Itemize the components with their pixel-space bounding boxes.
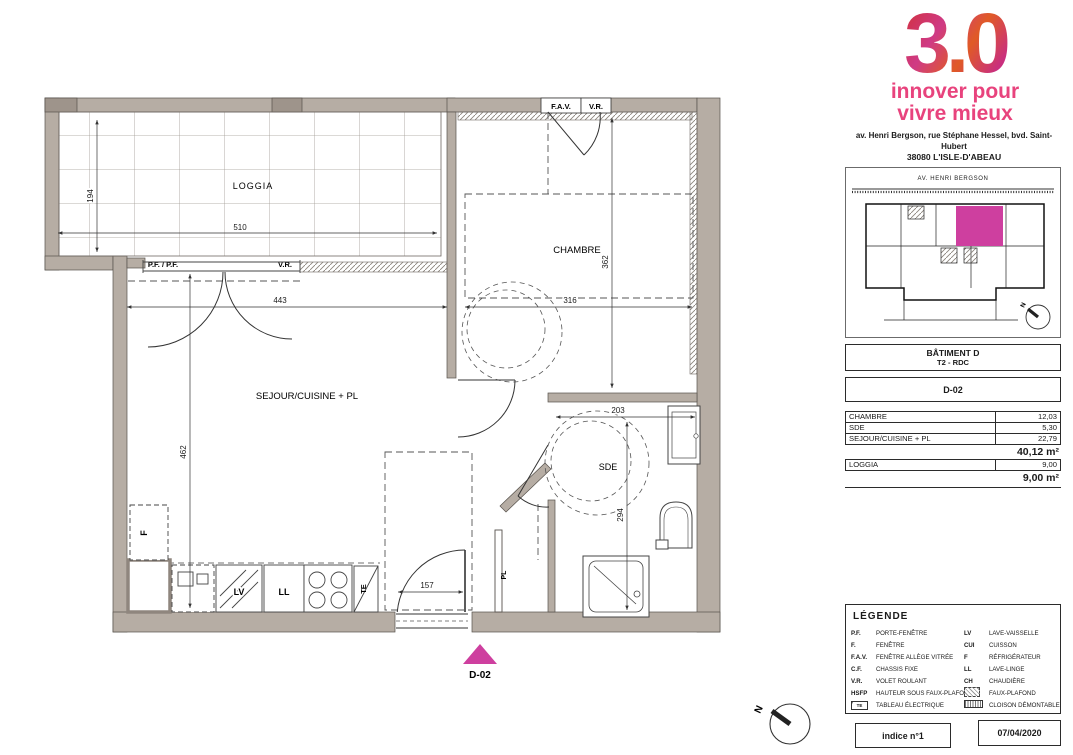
fav-label: F.A.V. <box>551 102 571 111</box>
address-line-2: 38080 L'ISLE-D'ABEAU <box>843 152 1065 163</box>
svg-text:462: 462 <box>179 445 188 459</box>
legend-item: CUI CUISSON <box>964 639 1060 651</box>
legend-item: LL LAVE-LINGE <box>964 663 1060 675</box>
legend-item: F RÉFRIGÉRATEUR <box>964 651 1060 663</box>
legend-title: LÉGENDE <box>853 611 1055 622</box>
unit-marker: D-02 <box>463 644 497 681</box>
electrical-panel-label: TE <box>359 584 368 594</box>
legend-right-column: LV LAVE-VAISSELLE CUI CUISSON F RÉFRIGÉR… <box>964 627 1060 711</box>
legend-item: LV LAVE-VAISSELLE <box>964 627 1060 639</box>
compass-icon: N <box>753 704 810 744</box>
legend-item: V.R. VOLET ROULANT <box>851 675 959 687</box>
legend-item: CLOISON DÉMONTABLE <box>964 699 1060 711</box>
compass-north-label: N <box>753 704 766 715</box>
total-main-area: 40,12 m² <box>845 445 1061 459</box>
legend-item: HSFP HAUTEUR SOUS FAUX-PLAFOND <box>851 687 959 699</box>
washer-label: LL <box>279 587 290 597</box>
areas-table: CHAMBRE 12,03 SDE 5,30 SEJOUR/CUISINE + … <box>845 411 1061 488</box>
total-loggia-area: 9,00 m² <box>845 471 1061 485</box>
dishwasher-label: LV <box>234 587 245 597</box>
room-label-sde: SDE <box>599 462 618 472</box>
legend-left-column: P.F. PORTE-FENÊTRE F. FENÊTRE F.A.V. FEN… <box>851 627 959 711</box>
table-row: SDE 5,30 <box>846 423 1061 434</box>
svg-text:157: 157 <box>420 581 434 590</box>
room-label-sejour: SEJOUR/CUISINE + PL <box>256 391 358 402</box>
area-label: SEJOUR/CUISINE + PL <box>846 434 996 445</box>
batiment-box: BÂTIMENT D T2 - RDC <box>845 344 1061 371</box>
legend-item: F.A.V. FENÊTRE ALLÈGE VITRÉE <box>851 651 959 663</box>
closet-label: PL <box>501 570 508 580</box>
floor-plan: F.A.V. V.R. P.F. / P.F. V.R. <box>0 0 840 755</box>
date-box: 07/04/2020 <box>978 720 1061 746</box>
logo-30-glyph: 3.0 <box>904 2 1008 90</box>
area-label: LOGGIA <box>846 460 996 471</box>
divider <box>845 487 1061 488</box>
legend-box: LÉGENDE P.F. PORTE-FENÊTRE F. FENÊTRE F.… <box>845 604 1061 714</box>
svg-text:294: 294 <box>616 508 625 522</box>
site-plan-box: AV. HENRI BERGSON <box>845 167 1061 338</box>
window-label-boxes: F.A.V. V.R. <box>541 98 611 113</box>
svg-text:362: 362 <box>601 255 610 269</box>
area-label: SDE <box>846 423 996 434</box>
faux-plafond-icon <box>964 687 989 699</box>
site-plan: AV. HENRI BERGSON <box>846 168 1060 337</box>
bathroom-fixtures <box>583 406 700 617</box>
siteplan-compass-icon: N <box>1019 301 1050 329</box>
kitchen-units <box>128 505 380 612</box>
title-block-column: 3.0 innover pour vivre mieux av. Henri B… <box>843 0 1065 755</box>
street-label: AV. HENRI BERGSON <box>918 176 989 182</box>
te-icon: TE <box>851 701 876 710</box>
company-address: av. Henri Bergson, rue Stéphane Hessel, … <box>843 130 1065 163</box>
highlighted-unit <box>956 206 1003 246</box>
indice-box: indice n°1 <box>855 723 951 748</box>
unit-number-box: D-02 <box>845 377 1061 402</box>
legend-item: TE TABLEAU ÉLECTRIQUE <box>851 699 959 711</box>
entrance-threshold <box>396 612 468 632</box>
vr-left-label: V.R. <box>278 260 292 269</box>
legend-item: P.F. PORTE-FENÊTRE <box>851 627 959 639</box>
type-floor: T2 - RDC <box>846 358 1060 367</box>
svg-text:N: N <box>1019 301 1027 308</box>
batiment-name: BÂTIMENT D <box>846 348 1060 358</box>
unit-marker-label: D-02 <box>469 670 491 681</box>
svg-text:443: 443 <box>273 296 287 305</box>
legend-item: FAUX-PLAFOND <box>964 687 1060 699</box>
table-row: SEJOUR/CUISINE + PL 22,79 <box>846 434 1061 445</box>
table-row: CHAMBRE 12,03 <box>846 412 1061 423</box>
area-value: 12,03 <box>996 412 1061 423</box>
svg-text:510: 510 <box>233 223 247 232</box>
area-value: 9,00 <box>996 460 1061 471</box>
fridge-label: F <box>139 530 149 536</box>
room-label-chambre: CHAMBRE <box>553 245 601 256</box>
svg-text:316: 316 <box>563 296 577 305</box>
svg-text:203: 203 <box>611 406 625 415</box>
area-value: 5,30 <box>996 423 1061 434</box>
company-logo: 3.0 innover pour vivre mieux <box>843 2 1065 126</box>
room-label-loggia: LOGGIA <box>233 181 274 191</box>
table-row: LOGGIA 9,00 <box>846 460 1061 471</box>
svg-text:194: 194 <box>86 189 95 203</box>
logo-tagline-line2: vivre mieux <box>897 102 1013 125</box>
legend-item: C.F. CHASSIS FIXE <box>851 663 959 675</box>
area-label: CHAMBRE <box>846 412 996 423</box>
legend-item: F. FENÊTRE <box>851 639 959 651</box>
cloison-icon <box>964 700 989 710</box>
area-value: 22,79 <box>996 434 1061 445</box>
address-line-1: av. Henri Bergson, rue Stéphane Hessel, … <box>843 130 1065 152</box>
vr-top-label: V.R. <box>589 102 603 111</box>
logo-tagline-line1: innover pour <box>891 80 1019 103</box>
pfpf-label: P.F. / P.F. <box>148 260 178 269</box>
legend-item: CH CHAUDIÈRE <box>964 675 1060 687</box>
